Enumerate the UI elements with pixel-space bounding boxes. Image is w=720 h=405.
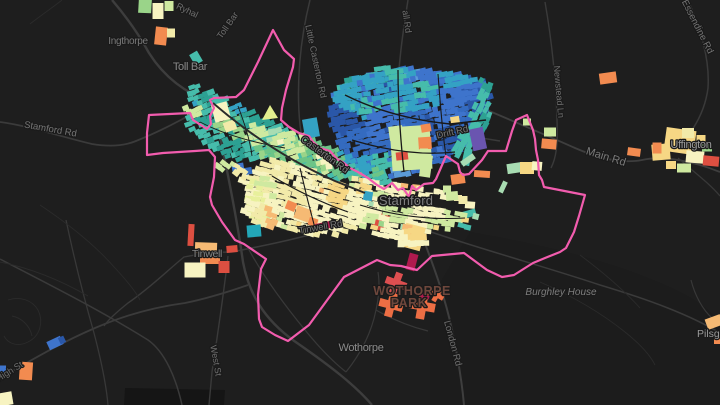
svg-text:Tinwell: Tinwell (192, 248, 222, 260)
svg-text:Toll Bar: Toll Bar (173, 61, 208, 73)
svg-text:Burghley House: Burghley House (525, 287, 597, 298)
svg-text:Wothorpe: Wothorpe (338, 342, 383, 354)
svg-text:Ingthorpe: Ingthorpe (108, 36, 148, 47)
svg-text:PARK: PARK (391, 296, 428, 310)
svg-text:Pilsgate: Pilsgate (697, 328, 720, 340)
svg-text:Uffington: Uffington (670, 139, 711, 151)
svg-text:Stamford: Stamford (379, 193, 433, 208)
